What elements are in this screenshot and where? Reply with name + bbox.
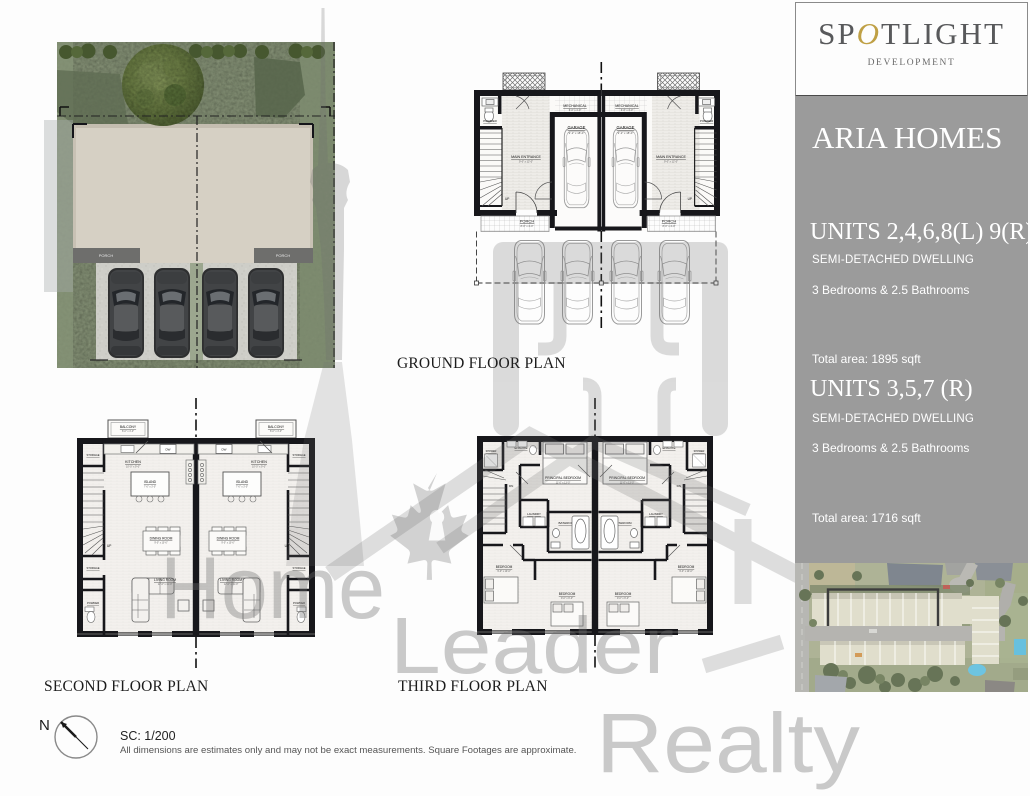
svg-text:PORCH: PORCH (520, 219, 535, 224)
svg-text:DINING ROOM: DINING ROOM (150, 537, 173, 541)
svg-text:11'-0" x 13'-0": 11'-0" x 13'-0" (556, 482, 571, 485)
svg-text:ISLAND: ISLAND (236, 480, 249, 484)
svg-text:POWDER: POWDER (293, 601, 305, 605)
svg-text:11'-0" x 13'-0": 11'-0" x 13'-0" (620, 482, 635, 485)
svg-text:MECHANICAL: MECHANICAL (563, 104, 587, 108)
svg-text:STORAGE: STORAGE (292, 453, 305, 457)
svg-text:LAUNDRY: LAUNDRY (649, 512, 663, 516)
svg-text:UP: UP (285, 544, 289, 548)
svg-text:STORAGE: STORAGE (86, 566, 99, 570)
svg-text:BEDROOM: BEDROOM (559, 592, 576, 596)
svg-text:7'-0" x 3'-0": 7'-0" x 3'-0" (236, 486, 248, 489)
svg-text:BALCONY: BALCONY (120, 425, 137, 429)
svg-text:ISLAND: ISLAND (144, 480, 157, 484)
svg-text:BEDROOM: BEDROOM (496, 565, 513, 569)
svg-text:DINING ROOM: DINING ROOM (217, 537, 240, 541)
svg-text:SHOWER: SHOWER (694, 450, 705, 453)
svg-text:10'-0" x 9'-0": 10'-0" x 9'-0" (126, 466, 140, 469)
svg-text:BEDROOM: BEDROOM (678, 565, 695, 569)
svg-text:POWDER: POWDER (700, 119, 714, 123)
svg-text:9'-2" x 18'-0": 9'-2" x 18'-0" (569, 131, 585, 135)
svg-text:8'-0" x 4'-0": 8'-0" x 4'-0" (122, 430, 134, 433)
svg-text:KITCHEN: KITCHEN (125, 460, 141, 464)
svg-text:N: N (39, 717, 50, 734)
svg-text:LIVING ROOM: LIVING ROOM (220, 578, 242, 582)
svg-text:GARAGE: GARAGE (617, 125, 635, 130)
svg-text:MAIN ENTRANCE: MAIN ENTRANCE (656, 155, 686, 159)
svg-text:6'-0" x 4'-0": 6'-0" x 4'-0" (621, 109, 634, 112)
svg-text:BEDROOM: BEDROOM (615, 592, 632, 596)
svg-text:MECHANICAL: MECHANICAL (615, 104, 639, 108)
svg-text:9'-0" x 9'-0": 9'-0" x 9'-0" (617, 597, 629, 600)
svg-text:All dimensions are estimates o: All dimensions are estimates only and ma… (120, 745, 576, 756)
svg-text:POWDER: POWDER (483, 119, 497, 123)
svg-text:SHOWER: SHOWER (486, 450, 497, 453)
svg-text:DW: DW (166, 448, 171, 452)
svg-text:GARAGE: GARAGE (568, 125, 586, 130)
svg-text:UP: UP (505, 197, 509, 201)
svg-text:DN: DN (677, 484, 681, 488)
svg-text:PORCH: PORCH (662, 219, 677, 224)
svg-text:SC: 1/200: SC: 1/200 (120, 729, 176, 743)
svg-text:STORAGE: STORAGE (86, 453, 99, 457)
svg-text:PORCH: PORCH (99, 253, 114, 258)
svg-text:LIVING ROOM: LIVING ROOM (154, 578, 176, 582)
svg-text:UP: UP (688, 197, 692, 201)
svg-text:DN: DN (509, 484, 513, 488)
svg-text:10'-0" x 9'-0": 10'-0" x 9'-0" (252, 466, 266, 469)
svg-text:12'-0" x 11'-0": 12'-0" x 11'-0" (224, 583, 239, 586)
svg-text:9'-0" x 9'-0": 9'-0" x 9'-0" (561, 597, 573, 600)
svg-text:9'-2" x 18'-0": 9'-2" x 18'-0" (618, 131, 634, 135)
svg-text:12'-0" x 11'-0": 12'-0" x 11'-0" (158, 583, 173, 586)
svg-text:7'-0" x 3'-0": 7'-0" x 3'-0" (144, 486, 156, 489)
svg-text:8'-0" x 4'-0": 8'-0" x 4'-0" (662, 224, 675, 228)
svg-text:PRINCIPAL BEDROOM: PRINCIPAL BEDROOM (545, 476, 581, 480)
svg-text:LAUNDRY: LAUNDRY (527, 512, 541, 516)
svg-text:STORAGE: STORAGE (292, 566, 305, 570)
svg-text:DW: DW (222, 448, 227, 452)
svg-text:UP: UP (107, 544, 111, 548)
svg-text:8'-0" x 4'-0": 8'-0" x 4'-0" (270, 430, 282, 433)
svg-text:9'-0" x 12'-0": 9'-0" x 12'-0" (664, 161, 678, 164)
svg-text:9'-0" x 10'-0": 9'-0" x 10'-0" (154, 542, 168, 545)
svg-text:9'-0" x 10'-0": 9'-0" x 10'-0" (221, 542, 235, 545)
svg-text:PORCH: PORCH (276, 253, 291, 258)
svg-text:9'-0" x 12'-0": 9'-0" x 12'-0" (519, 161, 533, 164)
svg-text:BALCONY: BALCONY (268, 425, 285, 429)
svg-text:9'-0" x 10'-0": 9'-0" x 10'-0" (679, 570, 693, 573)
svg-text:POWDER: POWDER (87, 601, 99, 605)
svg-text:9'-0" x 10'-0": 9'-0" x 10'-0" (497, 570, 511, 573)
svg-text:PRINCIPAL BEDROOM: PRINCIPAL BEDROOM (609, 476, 645, 480)
svg-text:MAIN ENTRANCE: MAIN ENTRANCE (511, 155, 541, 159)
svg-text:8'-0" x 4'-0": 8'-0" x 4'-0" (520, 224, 533, 228)
svg-text:6'-0" x 4'-0": 6'-0" x 4'-0" (569, 109, 582, 112)
svg-text:KITCHEN: KITCHEN (251, 460, 267, 464)
